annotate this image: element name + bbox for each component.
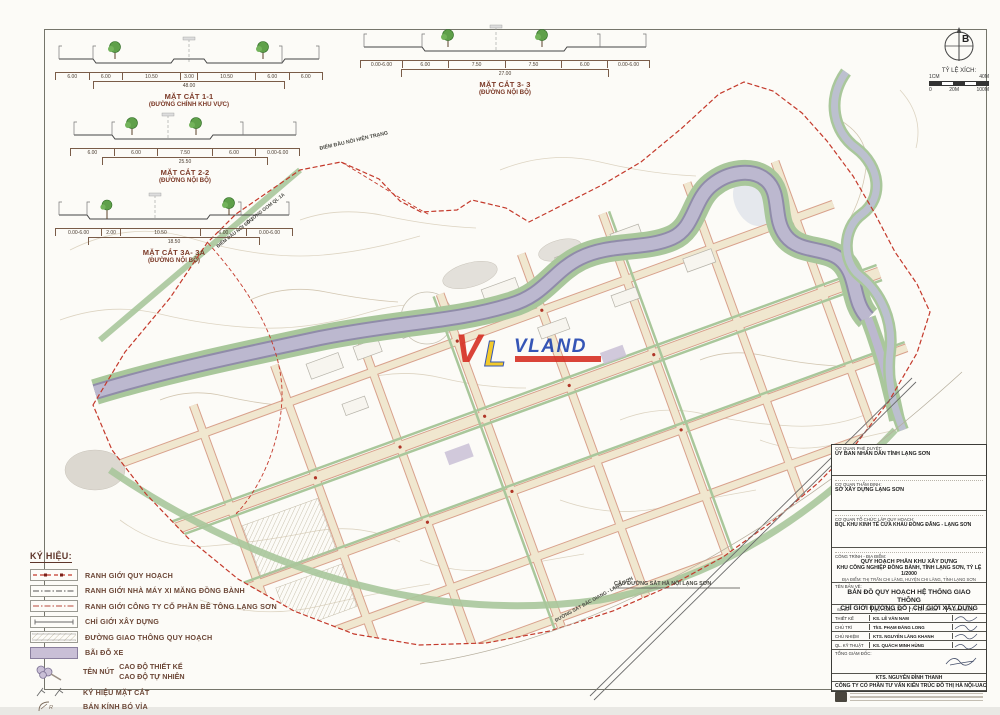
north-arrow-icon: B xyxy=(925,25,993,65)
role-row-lead: CHỦ TRÌ ThS. PHẠM ĐĂNG LONG xyxy=(832,623,986,632)
section-3-3-subtitle: (ĐƯỜNG NỘI BỘ) xyxy=(360,89,650,96)
drawing-name-cell: TÊN BẢN VẼ: BẢN ĐỒ QUY HOẠCH HỆ THỐNG GI… xyxy=(832,583,986,605)
section-1-1-total: 48.00 xyxy=(93,81,286,89)
section-2-2-subtitle: (ĐƯỜNG NỘI BỘ) xyxy=(70,177,300,184)
role-row-manager: CHỦ NHIỆM KTS. NGUYỄN LĂNG KHANH xyxy=(832,632,986,641)
role-row-technical: QL. KỸ THUẬT KS. QUÁCH MINH HÙNG xyxy=(832,641,986,650)
node-symbol-icon xyxy=(30,667,76,677)
red-dash-dot-line-icon xyxy=(30,600,78,612)
signature xyxy=(953,623,983,631)
director-cell: TỔNG GIÁM ĐỐC: xyxy=(832,650,986,674)
node-levels: CAO ĐỘ THIẾT KẾ CAO ĐỘ TỰ NHIÊN xyxy=(119,662,184,681)
legend-item-cement-factory-boundary: RANH GIỚI NHÀ MÁY XI MĂNG ĐỒNG BÀNH xyxy=(30,585,330,597)
cross-section-3-3: 0.00-6.00 6.00 7.50 7.50 6.00 0.00-6.00 … xyxy=(360,24,650,96)
legend-item-section-mark: KÝ HIỆU MẶT CẮT xyxy=(30,687,330,697)
legend-item-planned-road: ĐƯỜNG GIAO THÔNG QUY HOẠCH xyxy=(30,631,330,643)
appraisal-cell: CƠ QUAN THẨM ĐỊNH: SỞ XÂY DỰNG LẠNG SƠN xyxy=(832,481,986,511)
section-2-2-profile xyxy=(70,112,300,148)
cross-section-1-1: 6.00 6.00 10.50 3.00 10.50 6.00 6.00 48.… xyxy=(55,36,323,108)
director-signature xyxy=(942,652,982,668)
section-3a-3a-subtitle: (ĐƯỜNG NỘI BỘ) xyxy=(55,257,293,264)
legend-item-building-line: CHỈ GIỚI XÂY DỰNG xyxy=(30,616,330,628)
legend-item-concrete-company-boundary: RANH GIỚI CÔNG TY CỔ PHẦN BÊ TÔNG LẠNG S… xyxy=(30,600,330,612)
legend-item-node-levels: TÊN NÚT CAO ĐỘ THIẾT KẾ CAO ĐỘ TỰ NHIÊN xyxy=(30,662,330,681)
drawing-paper: ĐIỂM ĐẦU NỐI HIỆN TRẠNG ĐIỂM ĐẦU NỐI SỐ … xyxy=(0,0,1000,707)
section-mark-icon xyxy=(30,687,76,697)
approval-cell: CƠ QUAN PHÊ DUYỆT: ỦY BAN NHÂN DÂN TỈNH … xyxy=(832,445,986,476)
building-line-icon xyxy=(30,616,78,628)
company-address xyxy=(832,691,986,703)
tree-icon xyxy=(441,30,548,48)
role-row-designer: THIẾT KẾ KS. LÊ VĂN NAM xyxy=(832,614,986,623)
legend: KÝ HIỆU: RANH GIỚI QUY HOẠCH RANH GIỚI N… xyxy=(30,546,330,715)
legend-item-planning-boundary: RANH GIỚI QUY HOẠCH xyxy=(30,569,330,581)
section-3-3-total: 27.00 xyxy=(401,69,610,77)
project-cell: CÔNG TRÌNH - ĐỊA ĐIỂM: QUY HOẠCH PHÂN KH… xyxy=(832,553,986,583)
title-block: CƠ QUAN PHÊ DUYỆT: ỦY BAN NHÂN DÂN TỈNH … xyxy=(831,444,987,692)
section-3a-3a-title: MẶT CẮT 3A- 3A xyxy=(55,248,293,257)
section-3a-3a-profile xyxy=(55,192,293,228)
drawing-meta-row: SỐ BV QUY CÁCH: A0 TỶ LỆ: 1/2000 THÁNG: … xyxy=(832,605,986,614)
tree-icon xyxy=(108,42,269,60)
scale-ticks: 0 20M 100M xyxy=(925,87,993,93)
node-name-label: TÊN NÚT xyxy=(83,667,114,676)
tree-icon xyxy=(125,118,202,136)
company-name: CÔNG TY CỔ PHẦN TƯ VẤN KIẾN TRÚC ĐÔ THỊ … xyxy=(832,682,986,691)
svg-text:B: B xyxy=(962,34,969,45)
legend-title: KÝ HIỆU: xyxy=(30,551,72,563)
signature xyxy=(953,641,983,649)
section-3-3-profile xyxy=(360,24,650,60)
section-1-1-profile xyxy=(55,36,323,72)
section-3a-3a-total: 18.50 xyxy=(88,237,259,245)
curb-radius-icon: R xyxy=(30,701,76,711)
signature xyxy=(953,632,983,640)
scale-units: 1CM 40M xyxy=(925,74,993,80)
dash-dot-line-icon xyxy=(30,585,78,597)
section-3a-3a-dims: 0.00-6.00 2.00 10.50 6.00 0.00-6.00 xyxy=(55,228,293,236)
cross-section-2-2: 6.00 6.00 7.50 6.00 0.00-6.00 25.50 MẶT … xyxy=(70,112,300,184)
section-1-1-dims: 6.00 6.00 10.50 3.00 10.50 6.00 6.00 xyxy=(55,72,323,80)
director-name: KTS. NGUYỄN ĐÌNH THANH xyxy=(832,674,986,682)
company-logo-icon xyxy=(835,692,847,702)
section-1-1-subtitle: (ĐƯỜNG CHÍNH KHU VỰC) xyxy=(55,101,323,108)
north-arrow-and-scale: B TỶ LỆ XÍCH: 1CM 40M 0 20M 100M xyxy=(925,25,993,93)
address-fineprint xyxy=(850,693,983,702)
scale-bar xyxy=(929,81,989,86)
section-3-3-dims: 0.00-6.00 6.00 7.50 7.50 6.00 0.00-6.00 xyxy=(360,60,650,68)
cross-section-3a-3a: 0.00-6.00 2.00 10.50 6.00 0.00-6.00 18.5… xyxy=(55,192,293,264)
road-hatch-icon xyxy=(30,631,78,643)
legend-item-parking: BÃI ĐỖ XE xyxy=(30,647,330,659)
organizer-cell: CƠ QUAN TỔ CHỨC LẬP QUY HOẠCH: BQL KHU K… xyxy=(832,516,986,548)
tree-icon xyxy=(100,198,234,220)
section-3-3-title: MẶT CẮT 3- 3 xyxy=(360,80,650,89)
boundary-red-dashed-icon xyxy=(30,569,78,581)
signature xyxy=(953,614,983,622)
section-2-2-title: MẶT CẮT 2-2 xyxy=(70,168,300,177)
section-2-2-dims: 6.00 6.00 7.50 6.00 0.00-6.00 xyxy=(70,148,300,156)
legend-item-curb-radius: R BÁN KÍNH BÓ VỈA xyxy=(30,701,330,711)
section-1-1-title: MẶT CẮT 1-1 xyxy=(55,92,323,101)
svg-text:R: R xyxy=(49,705,53,711)
section-2-2-total: 25.50 xyxy=(102,157,268,165)
parking-fill-icon xyxy=(30,647,78,659)
